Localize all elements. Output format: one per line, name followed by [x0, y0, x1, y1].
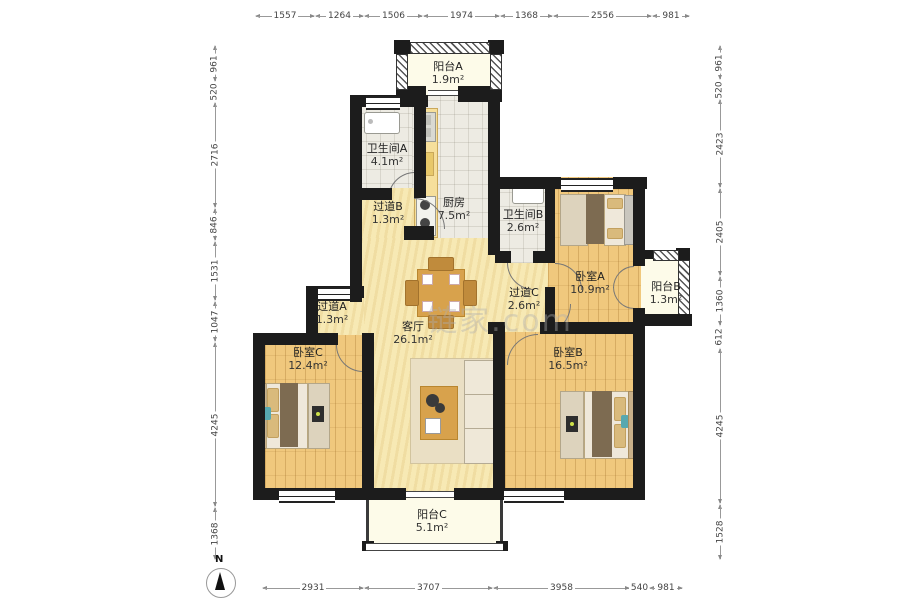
compass-north-label: N	[215, 554, 223, 565]
sofa	[464, 360, 496, 464]
wall	[404, 226, 434, 240]
wall	[540, 322, 645, 334]
room-name: 过道B	[360, 200, 416, 213]
dimension-right: 520	[714, 80, 726, 99]
wall	[645, 250, 653, 259]
room-area: 2.6m²	[494, 221, 552, 234]
bathtub-faucet	[368, 119, 373, 124]
room-area: 1.3m²	[360, 213, 416, 226]
room-name: 厨房	[426, 196, 482, 209]
dimension-top: 1974	[423, 10, 500, 22]
hallway-a-window	[318, 287, 350, 301]
room-label-hall-b: 过道B 1.3m²	[360, 200, 416, 226]
wall	[493, 322, 505, 490]
room-area: 26.1m²	[384, 333, 442, 346]
room-label-balcony-a: 阳台A 1.9m²	[418, 60, 478, 86]
balcony-c-frame	[366, 543, 503, 551]
room-label-bath-a: 卫生间A 4.1m²	[352, 142, 422, 168]
balcony-b-window	[653, 250, 679, 261]
room-name: 过道C	[496, 286, 552, 299]
room-label-bed-c: 卧室C 12.4m²	[280, 346, 336, 372]
bed-blanket	[592, 391, 612, 457]
compass: N	[206, 568, 234, 596]
wall	[633, 332, 645, 490]
balcony-c-frame	[366, 500, 369, 546]
dimension-right: 612	[714, 326, 726, 348]
dimension-left: 520	[209, 82, 221, 102]
room-name: 卧室C	[280, 346, 336, 359]
dimension-bottom: 2931	[262, 582, 364, 594]
room-area: 1.9m²	[418, 73, 478, 86]
dimension-top: 2556	[553, 10, 652, 22]
room-area: 2.6m²	[496, 299, 552, 312]
teapot	[435, 403, 445, 413]
dimension-bottom: 981	[649, 582, 683, 594]
balcony-a-window	[410, 42, 490, 54]
dimension-bottom: 540	[630, 582, 649, 594]
dimension-top: 1368	[500, 10, 553, 22]
room-name: 客厅	[384, 320, 442, 333]
dimension-left: 961	[209, 45, 221, 82]
bedroom-c-window	[279, 489, 335, 503]
dimension-right: 4245	[714, 348, 726, 504]
room-area: 1.3m²	[638, 293, 694, 306]
balcony-c-frame	[500, 500, 503, 546]
tv	[566, 416, 578, 432]
room-area: 12.4m²	[280, 359, 336, 372]
dimension-bottom: 3958	[493, 582, 630, 594]
room-name: 卧室B	[538, 346, 598, 359]
bed-blanket	[586, 194, 604, 244]
room-name: 阳台B	[638, 280, 694, 293]
room-label-hall-a: 过道A 1.3m²	[304, 300, 360, 326]
dimension-right: 1528	[714, 504, 726, 560]
room-area: 10.9m²	[562, 283, 618, 296]
balcony-a-window	[490, 54, 502, 90]
room-label-living: 客厅 26.1m²	[384, 320, 442, 346]
dimension-left: 1047	[209, 301, 221, 342]
room-label-bed-b: 卧室B 16.5m²	[538, 346, 598, 372]
dimension-left: 1531	[209, 241, 221, 301]
room-name: 卫生间A	[352, 142, 422, 155]
tray	[425, 418, 441, 434]
bed-blanket	[280, 383, 298, 447]
dimension-right: 961	[714, 45, 726, 80]
room-area: 7.5m²	[426, 209, 482, 222]
room-label-kitchen: 厨房 7.5m²	[426, 196, 482, 222]
dimension-bottom: 3707	[364, 582, 493, 594]
room-name: 卧室A	[562, 270, 618, 283]
dimension-right: 1360	[714, 276, 726, 326]
dining-chair	[428, 257, 454, 271]
dimension-left: 1368	[209, 507, 221, 560]
dimension-top: 1506	[364, 10, 423, 22]
wall	[633, 177, 645, 266]
pillow	[607, 198, 623, 209]
dimension-left: 846	[209, 208, 221, 241]
bedroom-b-window	[504, 489, 564, 503]
room-area: 4.1m²	[352, 155, 422, 168]
dining-table	[417, 269, 465, 317]
dimension-left: 2716	[209, 102, 221, 208]
dining-chair	[405, 280, 419, 306]
tv	[312, 406, 324, 422]
room-name: 卫生间B	[494, 208, 552, 221]
wall	[394, 40, 410, 54]
wall	[495, 251, 511, 263]
wall	[454, 488, 505, 500]
balcony-a-window	[396, 54, 408, 90]
wall	[352, 488, 406, 500]
balcony-a-threshold	[428, 90, 458, 96]
wall	[253, 333, 265, 500]
room-area: 5.1m²	[404, 521, 460, 534]
dimension-top: 981	[652, 10, 690, 22]
pillow	[607, 228, 623, 239]
dimension-left: 4245	[209, 342, 221, 507]
wall	[488, 40, 504, 54]
bedside-cabinet	[560, 194, 588, 246]
wall	[362, 333, 374, 490]
room-name: 过道A	[304, 300, 360, 313]
dimension-top: 1264	[315, 10, 364, 22]
balcony-c-threshold	[406, 491, 454, 498]
room-label-balcony-b: 阳台B 1.3m²	[638, 280, 694, 306]
bedroom-a-window	[561, 178, 613, 192]
room-label-bed-a: 卧室A 10.9m²	[562, 270, 618, 296]
compass-needle-icon	[215, 572, 225, 590]
room-name: 阳台A	[418, 60, 478, 73]
room-area: 16.5m²	[538, 359, 598, 372]
room-label-hall-c: 过道C 2.6m²	[496, 286, 552, 312]
wall	[352, 188, 392, 200]
floor-plan-canvas: 阳台A 1.9m² 卫生间A 4.1m² 厨房 7.5m² 过道B 1.3m² …	[0, 0, 914, 600]
dining-chair	[463, 280, 477, 306]
room-label-balcony-c: 阳台C 5.1m²	[404, 508, 460, 534]
dimension-right: 2423	[714, 99, 726, 188]
dimension-right: 2405	[714, 188, 726, 276]
wall	[533, 251, 555, 263]
room-label-bath-b: 卫生间B 2.6m²	[494, 208, 552, 234]
wall	[253, 333, 338, 345]
dimension-top: 1557	[255, 10, 315, 22]
bathroom-a-window	[366, 96, 400, 110]
room-name: 阳台C	[404, 508, 460, 521]
room-area: 1.3m²	[304, 313, 360, 326]
